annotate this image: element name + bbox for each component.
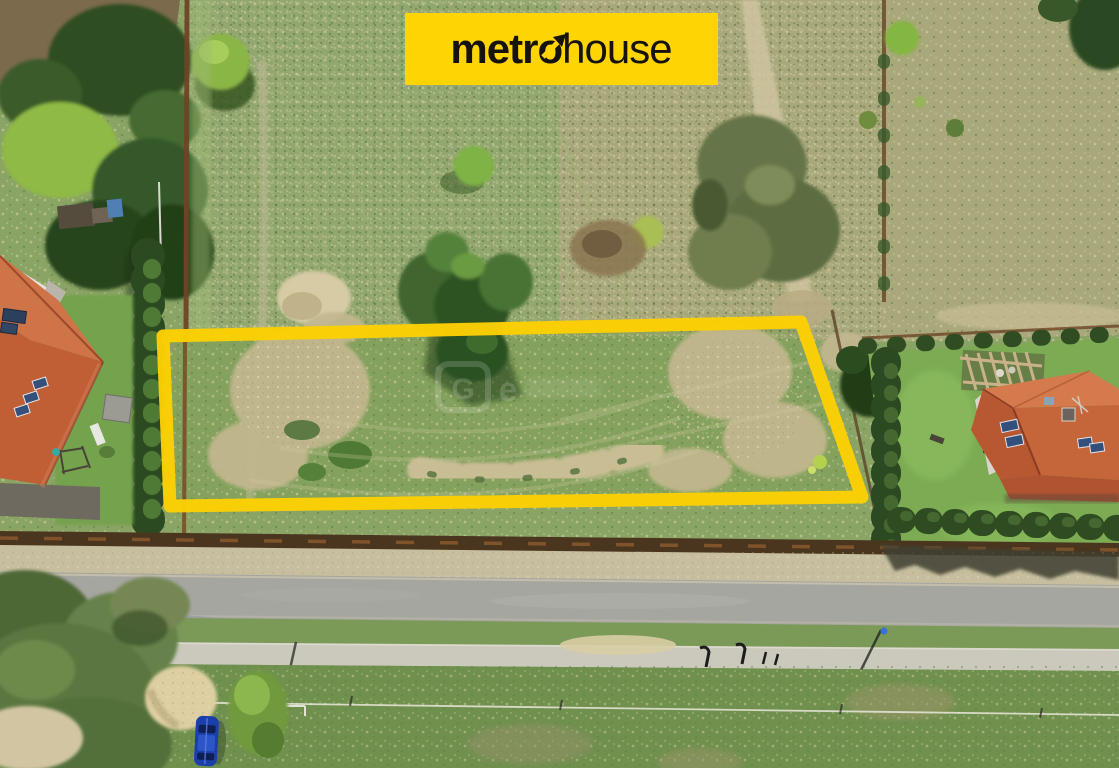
aerial-photo: G e metrohouse (0, 0, 1119, 768)
blue-tarp (107, 199, 124, 218)
left-house-orange-roof (0, 255, 133, 525)
blue-car (194, 715, 228, 767)
street-sign (881, 628, 888, 635)
patio-chair (996, 369, 1004, 377)
watermark-letter-g: G (451, 373, 474, 406)
yellow-bush (813, 455, 827, 469)
metrohouse-logo-text: metrohouse (450, 25, 671, 72)
chimney (1062, 408, 1075, 421)
garden-shed (102, 394, 132, 423)
sand-on-verge (560, 635, 676, 655)
watermark-letter-e: e (499, 371, 518, 409)
metrohouse-banner: metrohouse (405, 13, 718, 85)
aerial-photo-canvas: G e metrohouse (0, 0, 1119, 768)
terrace-paving (0, 483, 100, 520)
right-property (862, 326, 1119, 566)
